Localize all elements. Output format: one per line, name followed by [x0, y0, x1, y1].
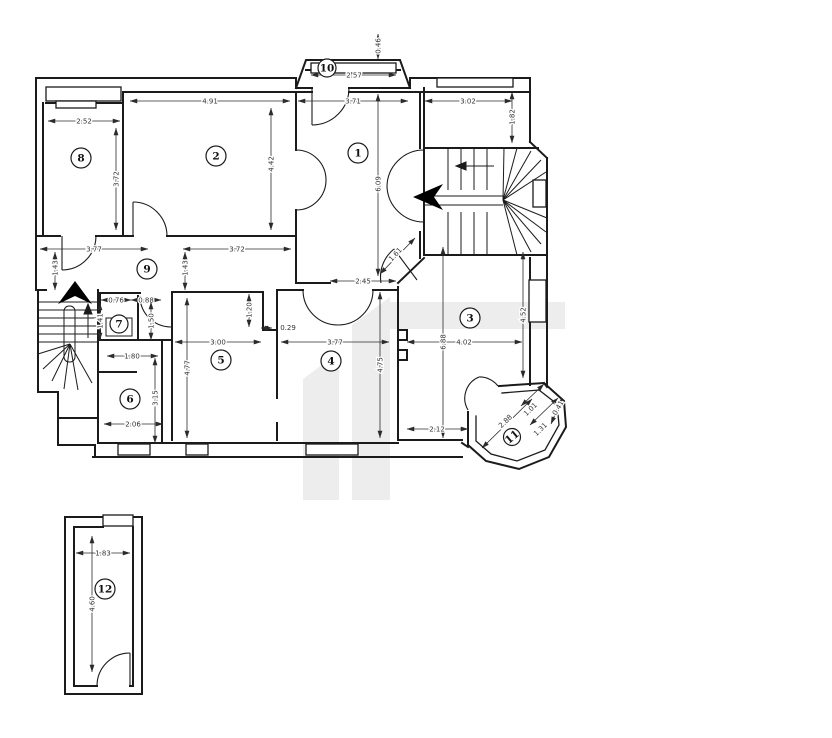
dimension-label: 4.91 [202, 98, 218, 106]
dimension-label: 1.41 [97, 313, 105, 329]
dimension-label: 4.60 [89, 596, 97, 612]
dimension-label: 3.15 [152, 390, 160, 406]
dimension-label: 2.88 [497, 413, 514, 430]
dimension-label: 6.09 [375, 176, 383, 192]
room-number-label: 6 [126, 394, 133, 406]
room-number-label: 5 [217, 355, 224, 367]
dimension-label: 0.76 [108, 297, 124, 305]
room-number-badge: 8 [71, 148, 91, 168]
dimension-label: 4.42 [268, 156, 276, 172]
floor-plan-page: 0.462.573.714.913.021.822.523.724.426.09… [0, 0, 832, 738]
room-number-badge: 1 [348, 143, 368, 163]
room-number-label: 9 [143, 264, 150, 276]
dimension-label: 0.46 [375, 38, 383, 54]
room-number-badge: 6 [120, 389, 140, 409]
room-number-label: 4 [327, 356, 334, 368]
room-number-badge: 4 [321, 351, 341, 371]
bay-window-room [468, 383, 566, 469]
dimension-label: 2.52 [76, 118, 92, 126]
dimension-label: 2.57 [346, 72, 362, 80]
watermark-logo [303, 297, 565, 500]
dimension-label: 3.72 [113, 171, 121, 187]
dimension-label: 0.88 [138, 297, 154, 305]
room-number-badge: 12 [95, 579, 115, 599]
room-number-badge: 11 [503, 428, 522, 447]
dimension-label: 1.61 [387, 246, 403, 263]
room-number-badge: 2 [206, 146, 226, 166]
dimension-label: 2.45 [355, 278, 371, 286]
dimension-label: 3.77 [86, 246, 102, 254]
dimension-label: 1.83 [95, 550, 111, 558]
room-number-label: 3 [466, 313, 473, 325]
dimension-label: 6.88 [440, 334, 448, 350]
room-number-label: 8 [77, 153, 84, 165]
staircase-right [424, 148, 547, 255]
room-number-badge: 7 [110, 315, 128, 333]
room-number-label: 10 [320, 63, 335, 75]
dimension-label: 1.31 [532, 421, 549, 438]
direction-arrow-up-icon [58, 281, 92, 304]
dimension-label: 1.43 [52, 260, 60, 276]
dimension-label: 3.02 [460, 98, 476, 106]
dimension-label: 4.75 [377, 357, 385, 373]
walls [36, 78, 547, 457]
dimension-label: 3.77 [327, 339, 343, 347]
dimension-annotations: 0.462.573.714.913.021.822.523.724.426.09… [40, 34, 566, 672]
annex-room-12 [65, 515, 142, 694]
room-number-badge: 3 [460, 308, 480, 328]
room-number-label: 2 [212, 151, 219, 163]
staircase-left [38, 302, 98, 390]
floor-plan-drawing: 0.462.573.714.913.021.822.523.724.426.09… [0, 0, 832, 738]
dimension-label: 1.20 [246, 302, 254, 318]
dimension-label: 1.01 [522, 401, 539, 418]
dimension-label: 0.29 [280, 324, 296, 332]
dimension-label: 4.77 [184, 360, 192, 376]
dimension-label: 4.02 [456, 339, 472, 347]
dimension-label: 3.72 [229, 246, 245, 254]
dimension-label: 2.06 [125, 421, 141, 429]
dimension-label: 2.12 [429, 426, 445, 434]
dimension-label: 1.43 [182, 260, 190, 276]
dimension-label: 1.80 [124, 353, 140, 361]
dimension-label: 4.52 [520, 307, 528, 323]
direction-arrow-left-icon [413, 184, 443, 210]
room-number-badge: 10 [318, 59, 336, 77]
room-number-label: 12 [98, 584, 113, 596]
room-number-label: 7 [115, 319, 122, 331]
dimension-label: 1.50 [148, 313, 156, 329]
dimension-label: 3.71 [345, 98, 361, 106]
room-number-badge: 5 [211, 350, 231, 370]
dimension-label: 1.82 [509, 109, 517, 125]
dimension-label: 3.00 [210, 339, 226, 347]
room-number-badge: 9 [137, 259, 157, 279]
room-number-label: 1 [354, 148, 361, 160]
